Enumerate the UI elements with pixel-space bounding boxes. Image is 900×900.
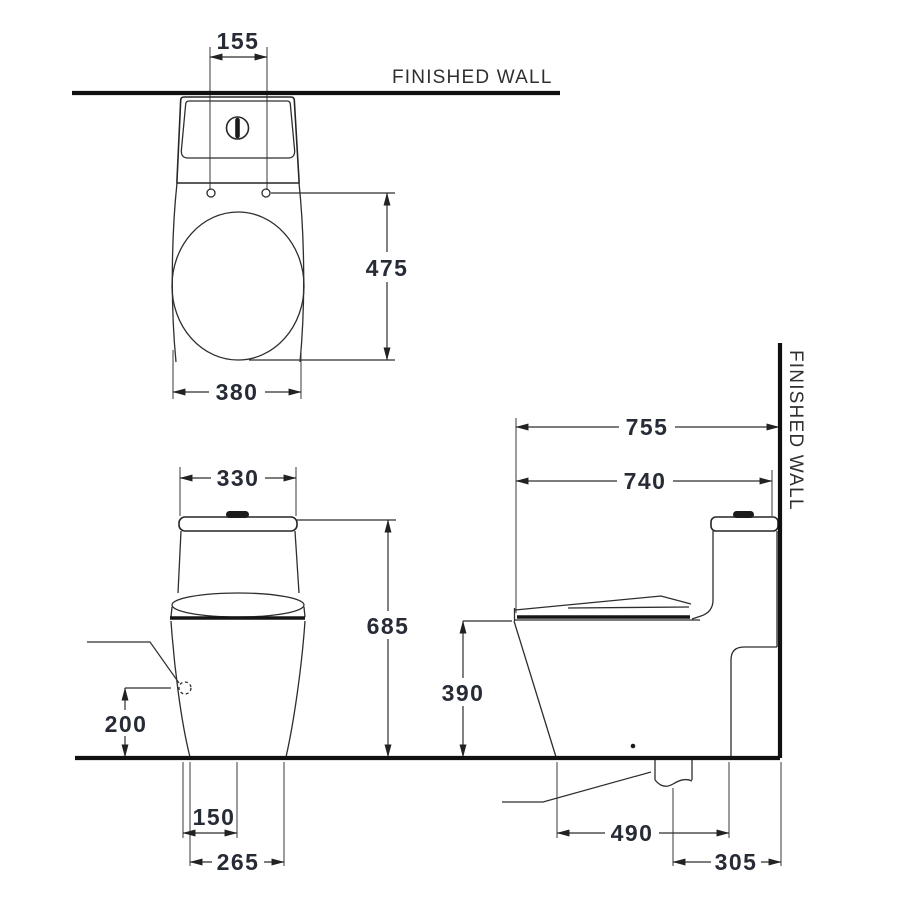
outlet-pipe [655,758,692,786]
front-tank-lid [179,517,297,531]
side-bowl-front-line [514,621,556,757]
dim-text-150: 150 [193,804,236,830]
water-inlet-leader [87,642,179,683]
technical-drawing-page: FINISHED WALL 155 475 380 330 [0,0,900,900]
top-view-body-sides [172,183,303,362]
side-tank-front [692,531,713,619]
front-tank-body-sides [178,531,299,593]
seat-opening-ellipse [172,212,304,360]
seat-bolt-hole-left [207,189,215,197]
dim-text-685: 685 [367,613,410,639]
dim-text-155: 155 [217,28,260,54]
dim-text-490: 490 [611,820,654,846]
seat-bolt-hole-right [262,189,270,197]
top-view-tank-outline [177,97,299,183]
water-inlet-circle [179,682,191,694]
dim-text-390: 390 [442,680,485,706]
top-view: FINISHED WALL 155 475 380 [72,28,560,405]
dim-text-755: 755 [626,414,669,440]
dim-text-200: 200 [105,711,148,737]
dim-text-380: 380 [216,379,259,405]
side-lid-button [733,511,754,518]
dim-text-475: 475 [366,255,409,281]
side-tank-lid [711,517,778,531]
side-view: 755 740 390 490 305 [437,343,806,875]
front-seat-ellipse [172,593,304,617]
dim-text-740: 740 [624,468,667,494]
finished-wall-label-side: FINISHED WALL [785,350,806,511]
front-view: 330 200 685 150 265 [87,465,414,875]
floor-dot [631,744,636,749]
front-lid-button [226,511,249,518]
toilet-dimension-diagram: FINISHED WALL 155 475 380 330 [0,0,900,900]
finished-wall-label-top: FINISHED WALL [392,67,553,88]
dim-text-305: 305 [715,849,758,875]
dim-text-330: 330 [217,465,260,491]
outlet-leader [502,772,651,802]
front-seat-rim-sides [171,607,305,617]
dim-text-265: 265 [217,849,260,875]
side-skirt-rear [731,647,777,757]
